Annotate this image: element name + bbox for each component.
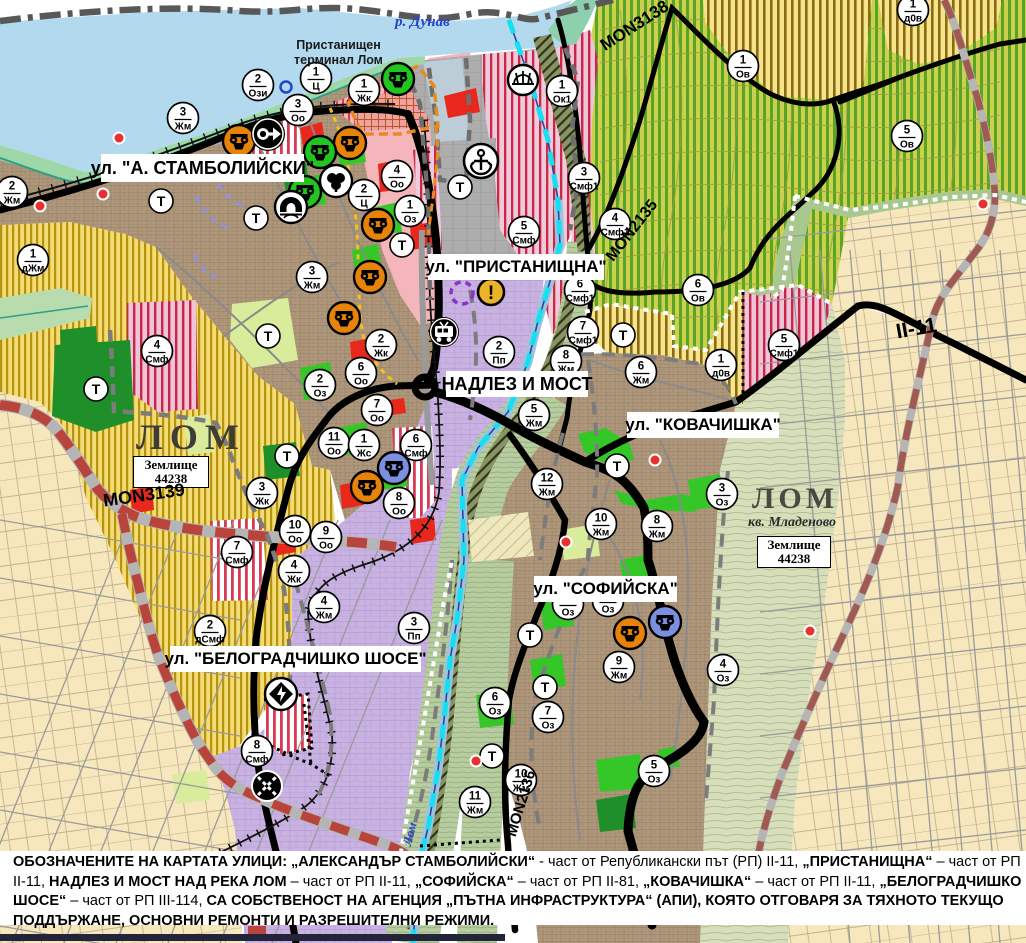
svg-text:Жк: Жк xyxy=(286,575,302,586)
svg-text:Т: Т xyxy=(92,381,101,397)
svg-text:д0в: д0в xyxy=(904,14,922,25)
svg-text:Т: Т xyxy=(541,679,550,695)
svg-text:Т: Т xyxy=(264,328,273,344)
svg-text:Оо: Оо xyxy=(354,377,368,388)
svg-text:Т: Т xyxy=(526,627,535,643)
svg-text:11: 11 xyxy=(469,791,482,803)
svg-text:11: 11 xyxy=(328,432,341,444)
svg-text:3: 3 xyxy=(581,167,587,179)
svg-text:3: 3 xyxy=(411,617,417,629)
svg-text:3: 3 xyxy=(719,483,725,495)
svg-text:Оз: Оз xyxy=(648,775,661,786)
svg-text:6: 6 xyxy=(492,692,498,704)
svg-text:10: 10 xyxy=(289,520,302,532)
svg-text:6: 6 xyxy=(358,362,364,374)
svg-text:5: 5 xyxy=(904,125,911,137)
svg-text:4: 4 xyxy=(291,560,298,572)
svg-text:Оз: Оз xyxy=(489,707,502,718)
svg-text:7: 7 xyxy=(234,541,240,553)
svg-text:Оз: Оз xyxy=(602,605,615,616)
svg-text:Ц: Ц xyxy=(312,82,320,93)
svg-text:7: 7 xyxy=(580,321,586,333)
svg-text:Т: Т xyxy=(488,748,497,764)
svg-text:Оо: Оо xyxy=(319,541,333,552)
svg-text:Жм: Жм xyxy=(648,530,665,541)
svg-text:9: 9 xyxy=(323,526,329,538)
svg-text:3: 3 xyxy=(295,99,301,111)
svg-text:Оо: Оо xyxy=(327,447,341,458)
svg-text:Жм: Жм xyxy=(538,488,555,499)
svg-text:3: 3 xyxy=(309,266,315,278)
svg-text:дЖм: дЖм xyxy=(22,264,45,275)
svg-text:Смф1: Смф1 xyxy=(566,293,595,305)
svg-text:д0в: д0в xyxy=(712,369,730,380)
svg-text:Пп: Пп xyxy=(407,632,420,643)
svg-text:4: 4 xyxy=(154,340,161,352)
svg-text:10: 10 xyxy=(595,513,608,525)
svg-text:6: 6 xyxy=(577,279,583,291)
svg-text:8: 8 xyxy=(254,740,261,752)
svg-text:Жк: Жк xyxy=(373,349,389,360)
svg-text:7: 7 xyxy=(374,399,380,411)
svg-text:1: 1 xyxy=(30,249,37,261)
svg-text:5: 5 xyxy=(531,404,538,416)
svg-text:Оз: Оз xyxy=(314,389,327,400)
svg-text:Ов: Ов xyxy=(691,294,705,305)
svg-text:Жм: Жм xyxy=(632,376,649,387)
svg-text:Смф: Смф xyxy=(145,354,168,366)
svg-text:Жм: Жм xyxy=(466,806,483,817)
svg-text:Жм: Жм xyxy=(315,611,332,622)
svg-text:Оо: Оо xyxy=(291,114,305,125)
svg-text:Жм: Жм xyxy=(174,122,191,133)
svg-text:2: 2 xyxy=(9,181,15,193)
svg-text:Т: Т xyxy=(613,458,622,474)
svg-text:2: 2 xyxy=(496,341,502,353)
svg-text:Жк: Жк xyxy=(254,497,270,508)
svg-text:7: 7 xyxy=(545,706,551,718)
svg-text:8: 8 xyxy=(654,515,661,527)
svg-text:Смф1: Смф1 xyxy=(770,348,799,360)
svg-text:1: 1 xyxy=(910,0,917,11)
svg-text:Пп: Пп xyxy=(492,356,505,367)
svg-text:1: 1 xyxy=(361,79,368,91)
svg-text:Ов: Ов xyxy=(736,70,750,81)
svg-text:Оз: Оз xyxy=(542,721,555,732)
svg-text:Смф: Смф xyxy=(225,555,248,567)
svg-text:12: 12 xyxy=(541,473,554,485)
svg-text:Т: Т xyxy=(252,210,261,226)
svg-text:5: 5 xyxy=(521,221,528,233)
svg-text:Оз: Оз xyxy=(562,608,575,619)
svg-text:3: 3 xyxy=(259,482,265,494)
svg-text:4: 4 xyxy=(720,659,727,671)
svg-text:Жм: Жм xyxy=(3,196,20,207)
svg-text:6: 6 xyxy=(695,279,701,291)
svg-text:Оо: Оо xyxy=(392,507,406,518)
svg-text:2: 2 xyxy=(207,620,213,632)
svg-text:Оо: Оо xyxy=(390,180,404,191)
svg-text:8: 8 xyxy=(563,350,570,362)
svg-text:Ози: Ози xyxy=(249,89,268,100)
svg-text:8: 8 xyxy=(396,492,403,504)
svg-text:Оо: Оо xyxy=(288,535,302,546)
svg-text:дСмф: дСмф xyxy=(195,634,225,646)
svg-text:Ов: Ов xyxy=(900,140,914,151)
svg-text:Смф1: Смф1 xyxy=(570,181,599,193)
svg-text:4: 4 xyxy=(394,165,401,177)
svg-text:9: 9 xyxy=(616,656,622,668)
svg-text:Жм: Жм xyxy=(525,419,542,430)
svg-text:Жм: Жм xyxy=(592,528,609,539)
svg-text:1: 1 xyxy=(313,67,320,79)
svg-text:6: 6 xyxy=(638,361,644,373)
svg-text:1: 1 xyxy=(559,80,566,92)
svg-text:Смф1: Смф1 xyxy=(569,335,598,347)
svg-text:Т: Т xyxy=(456,179,465,195)
svg-text:Жм: Жм xyxy=(303,281,320,292)
svg-text:2: 2 xyxy=(361,184,367,196)
svg-text:Жм: Жм xyxy=(610,671,627,682)
svg-text:!: ! xyxy=(488,283,494,304)
svg-text:Жс: Жс xyxy=(356,449,372,460)
svg-text:Т: Т xyxy=(157,193,166,209)
svg-text:Т: Т xyxy=(619,327,628,343)
svg-text:Ок1: Ок1 xyxy=(553,95,572,106)
svg-text:4: 4 xyxy=(612,213,619,225)
svg-text:5: 5 xyxy=(651,760,658,772)
svg-text:3: 3 xyxy=(180,107,186,119)
svg-text:Ц: Ц xyxy=(360,199,368,210)
svg-text:1: 1 xyxy=(407,200,414,212)
svg-text:Смф: Смф xyxy=(512,235,535,247)
svg-text:1: 1 xyxy=(718,354,725,366)
svg-text:Оо: Оо xyxy=(370,414,384,425)
svg-text:Оз: Оз xyxy=(716,498,729,509)
svg-text:2: 2 xyxy=(317,374,323,386)
svg-text:2: 2 xyxy=(378,334,384,346)
svg-text:1: 1 xyxy=(740,55,747,67)
svg-text:Смф: Смф xyxy=(404,448,427,460)
svg-text:Т: Т xyxy=(283,448,292,464)
svg-text:5: 5 xyxy=(781,334,788,346)
svg-text:Смф: Смф xyxy=(245,754,268,766)
svg-text:Оз: Оз xyxy=(717,674,730,685)
svg-text:6: 6 xyxy=(413,434,419,446)
svg-text:Оз: Оз xyxy=(404,215,417,226)
svg-text:1: 1 xyxy=(361,434,368,446)
svg-text:Т: Т xyxy=(398,237,407,253)
svg-text:Жк: Жк xyxy=(356,94,372,105)
svg-text:2: 2 xyxy=(255,74,261,86)
svg-text:4: 4 xyxy=(321,596,328,608)
